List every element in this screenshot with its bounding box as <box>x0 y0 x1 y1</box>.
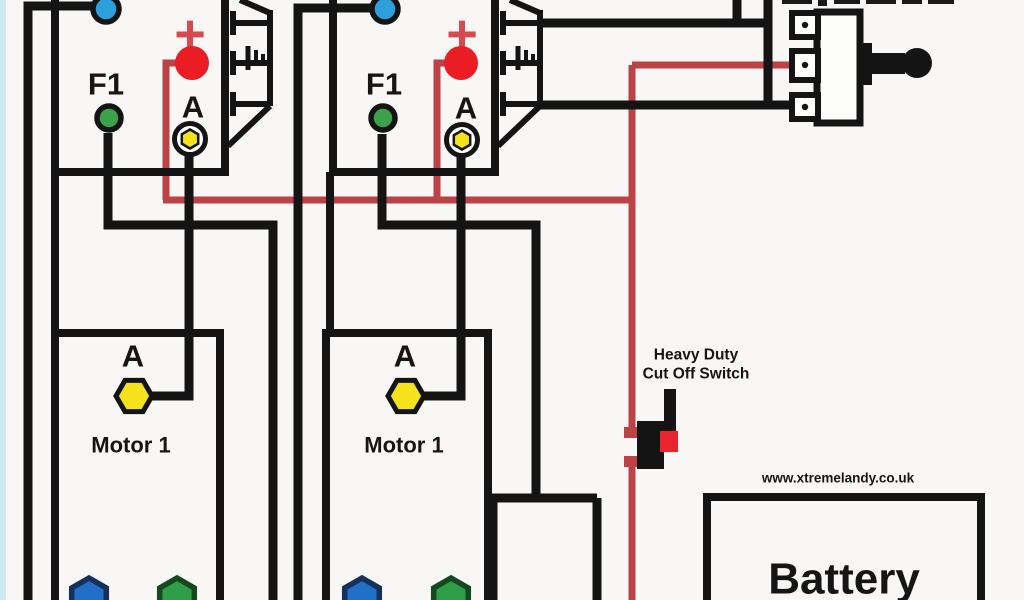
toggle-terminal-bottom-dot <box>802 104 808 110</box>
solenoid2-f1-terminal <box>371 106 395 130</box>
solenoid2-positive-terminal <box>444 46 478 80</box>
cropped-text-remnant <box>782 0 954 6</box>
solenoid1-a-label: A <box>182 90 204 125</box>
solenoid2-a-terminal-nut-icon <box>447 125 478 156</box>
solenoid1-positive-terminal <box>175 46 209 80</box>
toggle-switch-body <box>817 12 860 123</box>
cutoff-switch-red-key <box>660 431 678 452</box>
solenoid2-connector <box>498 0 540 146</box>
left-edge-strip <box>0 0 6 600</box>
solenoid1-f1-label: F1 <box>88 67 124 102</box>
toggle-lever-icon <box>859 43 932 85</box>
battery: www.xtremelandy.co.uk Battery <box>707 471 981 600</box>
solenoid2-a-label: A <box>455 91 477 126</box>
solenoid2-positive-wire <box>437 63 446 200</box>
cutoff-switch-lever-icon <box>664 389 676 436</box>
toggle-terminal-top-dot <box>802 22 808 28</box>
black-wiring <box>28 0 793 600</box>
motor2-a-terminal-hex-icon <box>388 380 424 411</box>
cutoff-switch-label-line1: Heavy Duty <box>654 347 739 364</box>
toggle-terminal-middle-dot <box>802 62 808 68</box>
solenoid1-f1-terminal <box>97 106 121 130</box>
diagram-canvas: + F1 A + F1 <box>0 0 1024 600</box>
battery-label: Battery <box>768 555 920 600</box>
toggle-switch <box>792 12 932 123</box>
solenoid2-f1-label: F1 <box>366 67 402 102</box>
solenoid2-blue-terminal <box>372 0 398 22</box>
motor1-blue-terminal-hex-icon <box>72 578 107 600</box>
cutoff-switch: Heavy Duty Cut Off Switch <box>624 347 749 470</box>
motor1-a-terminal-hex-icon <box>116 380 152 411</box>
motor1-a-label: A <box>122 339 144 374</box>
ground-icon <box>518 46 533 70</box>
motor1-name-label: Motor 1 <box>91 433 170 458</box>
motor2-name-label: Motor 1 <box>364 433 443 458</box>
solenoid1-blue-terminal-wire <box>28 6 95 600</box>
motor2-a-label: A <box>394 339 416 374</box>
cutoff-switch-stub-top <box>624 427 639 438</box>
ground-icon <box>248 46 263 70</box>
solenoid1-connector <box>228 0 270 146</box>
motor2-blue-terminal-hex-icon <box>345 578 380 600</box>
motor-1: A Motor 1 <box>55 333 220 600</box>
solenoid1-blue-terminal <box>93 0 119 22</box>
solenoid1-a-terminal-nut-icon <box>175 124 206 155</box>
cutoff-switch-body <box>637 421 664 469</box>
motor1-green-terminal-hex-icon <box>160 578 195 600</box>
cutoff-switch-label-line2: Cut Off Switch <box>643 366 750 383</box>
motor2-green-terminal-hex-icon <box>434 578 469 600</box>
wiring-diagram: + F1 A + F1 <box>0 0 1024 600</box>
cutoff-switch-stub-bottom <box>624 456 639 467</box>
website-url: www.xtremelandy.co.uk <box>761 471 915 486</box>
